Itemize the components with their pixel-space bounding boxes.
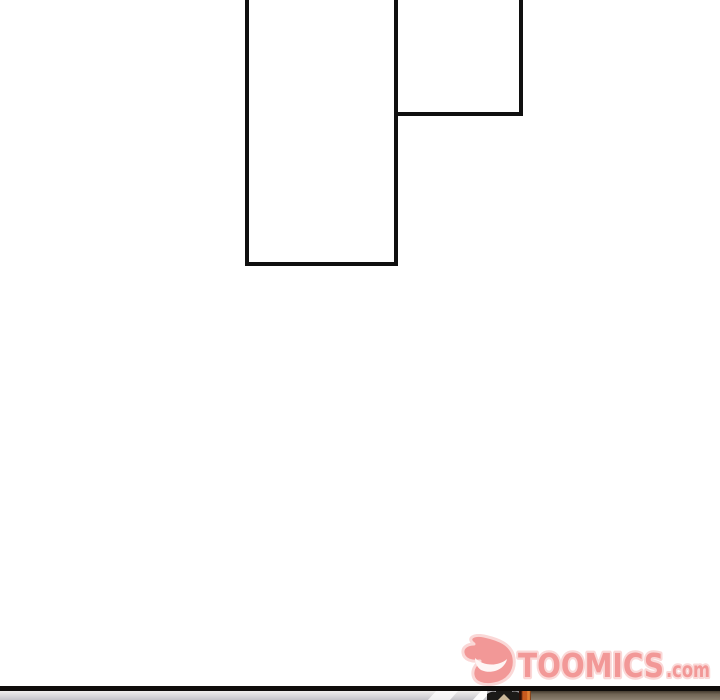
comic-panel-tall: [245, 0, 398, 266]
wood-brown-area: [531, 691, 720, 700]
next-panel-top-edge: [0, 686, 720, 700]
character-hair-silhouette: [487, 691, 521, 700]
toomics-watermark: TOOMICS .com: [460, 634, 712, 688]
comic-panel-small: [394, 0, 523, 116]
brand-suffix-text: .com: [666, 658, 710, 682]
toomics-devil-mascot-icon: [463, 635, 514, 684]
brand-text: TOOMICS: [518, 646, 664, 685]
panel-wall-gray: [0, 691, 490, 700]
comic-page: TOOMICS .com: [0, 0, 720, 700]
toomics-logo: TOOMICS .com: [460, 634, 712, 688]
